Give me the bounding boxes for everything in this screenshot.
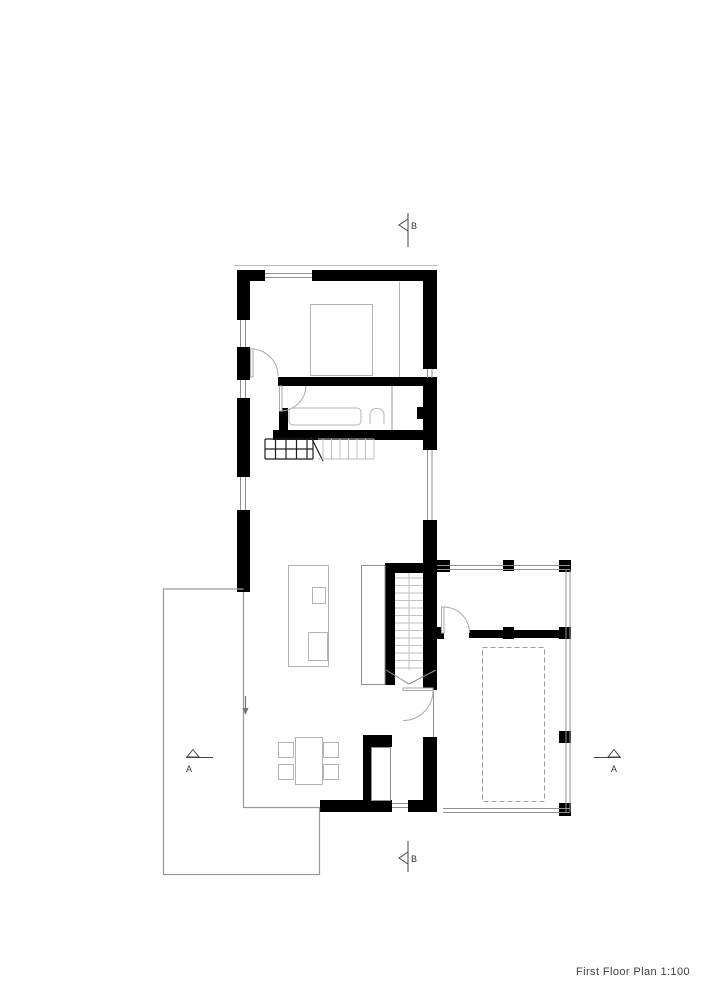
wall-west-2 (237, 347, 250, 380)
wall-south-right (408, 800, 437, 812)
wall-bathroom-stub (417, 407, 423, 419)
wall-bathroom-corner (279, 408, 288, 432)
annex-column-right-3 (559, 803, 571, 816)
wall-west-3 (237, 398, 250, 477)
wall-west-4 (237, 510, 250, 592)
floor-plan-drawing: B B A A First Floor Plan 1:100 (0, 0, 707, 1000)
canvas-background (0, 0, 707, 1000)
section-label-a-left: A (186, 764, 192, 774)
section-label-b-top: B (411, 221, 417, 231)
wall-east-1 (423, 270, 437, 369)
wall-entry-side (363, 747, 371, 801)
wall-east-3 (423, 520, 437, 690)
wall-north-right (312, 270, 437, 281)
plan-title: First Floor Plan 1:100 (576, 966, 690, 978)
wall-bedroom-south (278, 377, 437, 386)
wall-west-1 (237, 270, 250, 320)
bedroom-door-leaf (251, 349, 254, 377)
wall-stair-top (385, 563, 437, 573)
wall-entry-cap (363, 735, 392, 747)
annex-column-right-2 (559, 731, 571, 743)
wall-stair-left (385, 573, 395, 685)
annex-door-leaf (442, 607, 445, 633)
stair-door-leaf (403, 688, 433, 691)
section-label-a-right: A (611, 764, 617, 774)
section-label-b-bottom: B (411, 854, 417, 864)
annex-column-mid (503, 627, 514, 639)
annex-column-right-1 (559, 627, 571, 639)
bathroom-door-leaf (280, 386, 283, 411)
wall-south-left (320, 800, 392, 812)
annex-interior-wall (469, 630, 571, 638)
floor-plan-page: B B A A First Floor Plan 1:100 (0, 0, 707, 1000)
